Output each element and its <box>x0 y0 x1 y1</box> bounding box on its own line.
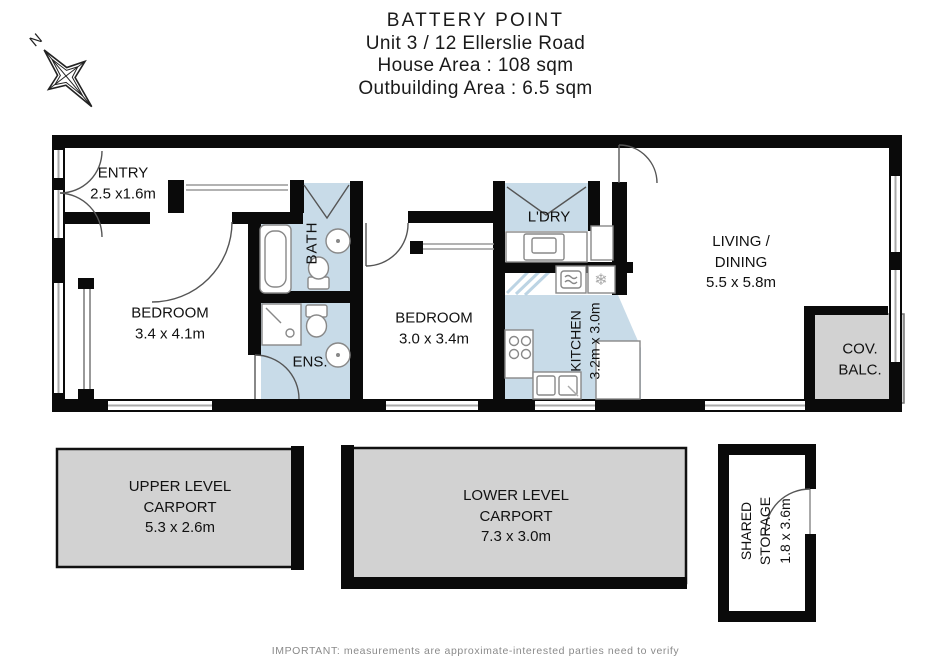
room-label-kitchen: KITCHEN 3.2m x 3.0m <box>567 302 606 379</box>
room-label-laundry: L'DRY <box>528 208 571 229</box>
label-upper-carport: UPPER LEVEL CARPORT 5.3 x 2.6m <box>129 477 232 539</box>
room-label-entry: ENTRY 2.5 x1.6m <box>90 163 156 204</box>
svg-text:❄: ❄ <box>594 272 607 289</box>
house-area: House Area : 108 sqm <box>0 55 951 78</box>
robe-sliding-doors <box>78 278 94 400</box>
property-address: Unit 3 / 12 Ellerslie Road <box>0 33 951 56</box>
property-name: BATTERY POINT <box>0 10 951 33</box>
room-label-bath: BATH <box>303 222 324 265</box>
room-label-bedroom2: BEDROOM 3.0 x 3.4m <box>395 308 473 349</box>
disclaimer-text: IMPORTANT: measurements are approximate-… <box>0 645 951 657</box>
kitchen-entry-stripes <box>507 270 549 295</box>
room-label-ensuite: ENS. <box>292 353 327 374</box>
room-label-bedroom1: BEDROOM 3.4 x 4.1m <box>131 303 209 344</box>
room-label-balcony: COV. BALC. <box>838 339 881 380</box>
plan-title-block: BATTERY POINT Unit 3 / 12 Ellerslie Road… <box>0 10 951 100</box>
label-lower-carport: LOWER LEVEL CARPORT 7.3 x 3.0m <box>463 486 569 548</box>
outbuilding-area: Outbuilding Area : 6.5 sqm <box>0 78 951 101</box>
label-shared-storage: SHARED STORAGE 1.8 x 3.6m <box>737 497 795 565</box>
floorplan-page: N <box>0 0 951 672</box>
room-label-living: LIVING / DINING 5.5 x 5.8m <box>706 232 776 294</box>
laundry-fixtures <box>506 232 587 262</box>
